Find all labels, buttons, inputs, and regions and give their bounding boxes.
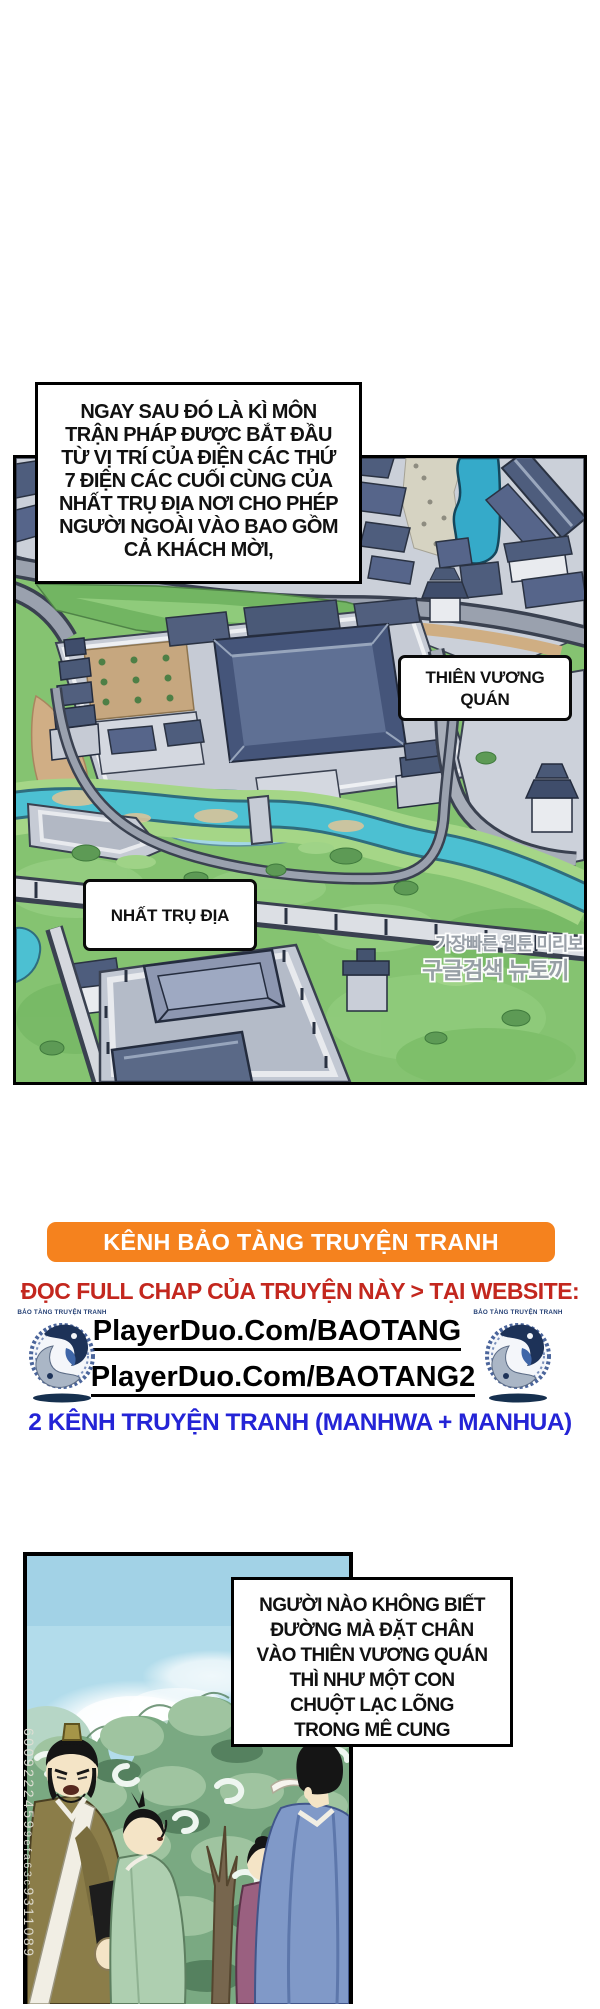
svg-text:✦ BẢO TÀNG TRUYỆN TRANH ✦: ✦ BẢO TÀNG TRUYỆN TRANH ✦	[472, 1307, 564, 1316]
svg-text:가장빠른 웹툰 미리보기: 가장빠른 웹툰 미리보기	[435, 934, 584, 954]
svg-text:✦ BẢO TÀNG TRUYỆN TRANH ✦: ✦ BẢO TÀNG TRUYỆN TRANH ✦	[16, 1307, 108, 1316]
svg-text:구글검색 뉴토끼: 구글검색 뉴토끼	[422, 957, 569, 983]
